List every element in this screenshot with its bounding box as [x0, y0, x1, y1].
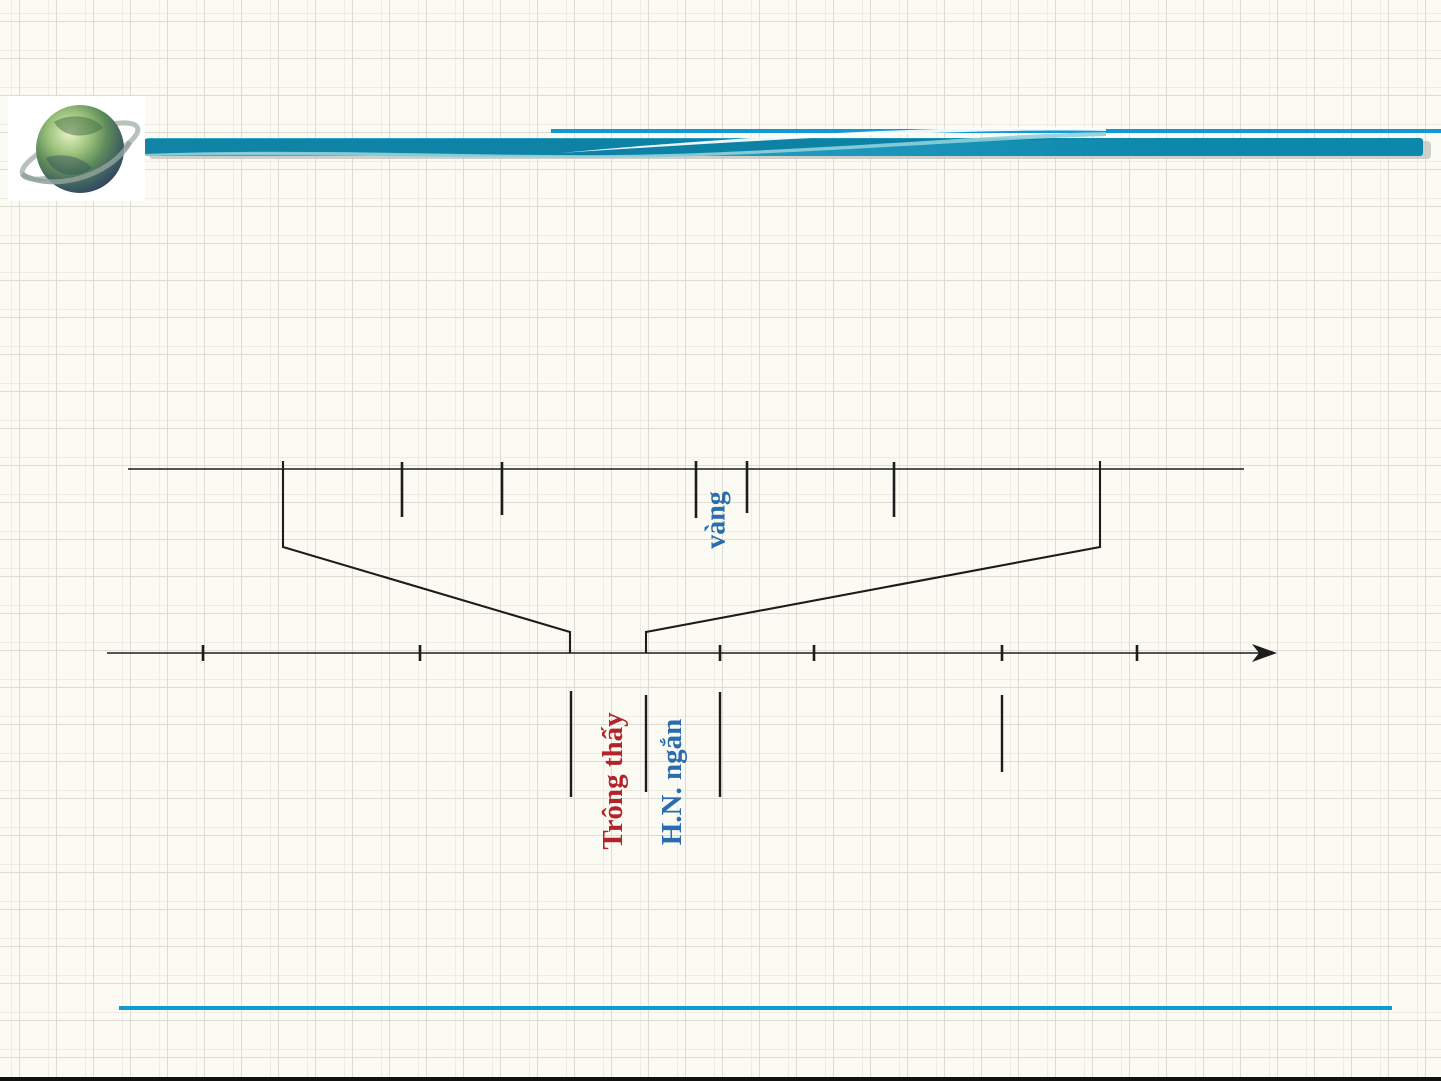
header-banner: [145, 127, 1441, 159]
label-vang: vàng: [701, 491, 732, 549]
funnel-bracket: [283, 461, 570, 653]
label-trong-thay: Trông thấy: [597, 712, 629, 850]
slide-content: vàng Trông thấy H.N. ngắn: [0, 0, 1441, 1081]
footer: [0, 1006, 1441, 1081]
footer-blue-rule: [119, 1006, 1392, 1010]
slide-background-grid: vàng Trông thấy H.N. ngắn: [0, 0, 1441, 1081]
spectrum-diagram: [107, 461, 1277, 797]
funnel-bracket: [646, 461, 1100, 653]
label-hn-ngan: H.N. ngắn: [656, 719, 688, 846]
bottom-edge-bar: [0, 1077, 1441, 1081]
diagram-labels: vàng Trông thấy H.N. ngắn: [597, 491, 732, 849]
globe-logo: [8, 96, 145, 201]
